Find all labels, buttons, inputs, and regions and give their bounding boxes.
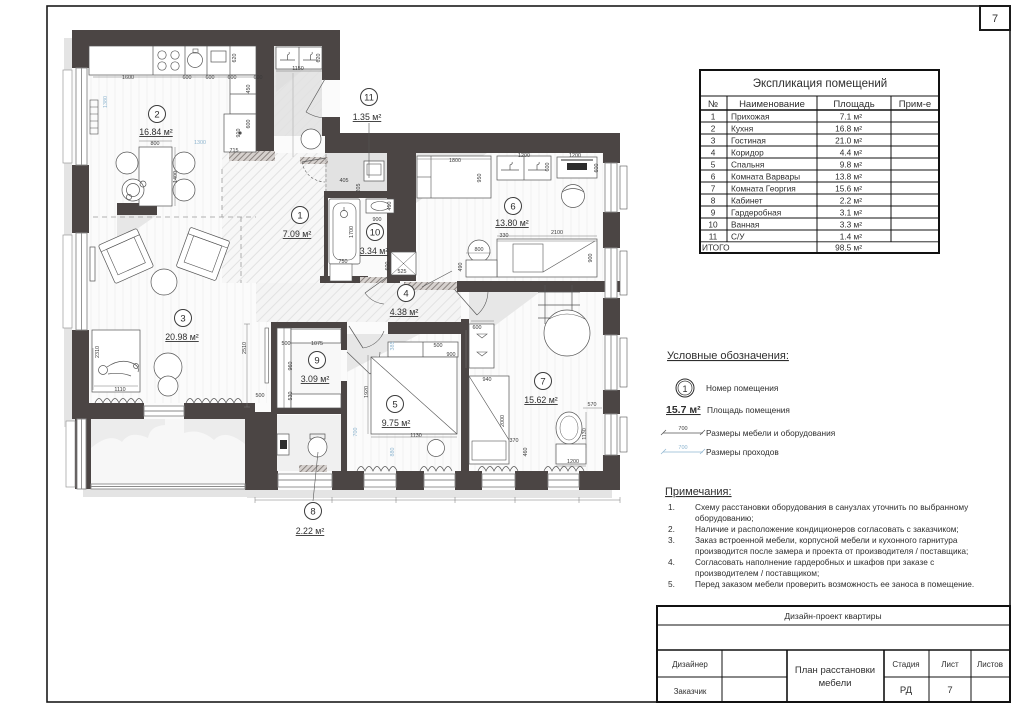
svg-text:600: 600 (206, 75, 215, 81)
svg-text:4.4 м²: 4.4 м² (840, 148, 863, 158)
svg-text:880: 880 (390, 448, 396, 457)
svg-text:9: 9 (711, 208, 716, 218)
svg-text:5.: 5. (668, 579, 675, 589)
svg-text:Гардеробная: Гардеробная (731, 208, 781, 218)
svg-text:600: 600 (246, 120, 252, 129)
svg-text:15.7 м²: 15.7 м² (666, 404, 701, 416)
svg-text:910: 910 (236, 129, 242, 138)
svg-text:20.98 м²: 20.98 м² (165, 332, 199, 342)
svg-text:450: 450 (387, 202, 393, 211)
svg-text:1700: 1700 (349, 226, 355, 238)
svg-text:мебели: мебели (819, 678, 852, 689)
svg-text:5: 5 (392, 400, 397, 411)
svg-text:900: 900 (373, 217, 382, 223)
svg-text:205: 205 (356, 184, 362, 193)
svg-text:2.22 м²: 2.22 м² (296, 526, 325, 536)
svg-text:Наличие и расположение кондици: Наличие и расположение кондиционеров сог… (695, 524, 959, 534)
svg-text:Примечания:: Примечания: (665, 486, 732, 498)
svg-text:460: 460 (523, 448, 529, 457)
svg-text:1920: 1920 (364, 386, 370, 398)
svg-text:1200: 1200 (518, 153, 530, 159)
svg-text:1.35 м²: 1.35 м² (353, 112, 382, 122)
svg-text:10: 10 (370, 228, 381, 239)
svg-text:3.3 м²: 3.3 м² (840, 220, 863, 230)
svg-text:4.38 м²: 4.38 м² (390, 307, 419, 317)
svg-text:450: 450 (246, 85, 252, 94)
svg-text:370: 370 (510, 438, 519, 444)
svg-text:7: 7 (711, 184, 716, 194)
svg-text:Лист: Лист (941, 660, 959, 669)
svg-text:2.2 м²: 2.2 м² (840, 196, 863, 206)
svg-text:Условные обозначения:: Условные обозначения: (667, 350, 789, 362)
svg-text:Прихожая: Прихожая (731, 112, 769, 122)
svg-text:Площадь: Площадь (833, 99, 874, 110)
svg-text:Спальня: Спальня (731, 160, 764, 170)
svg-text:2100: 2100 (551, 230, 563, 236)
svg-text:Листов: Листов (977, 660, 1003, 669)
svg-text:800: 800 (151, 141, 160, 147)
svg-text:530: 530 (288, 392, 294, 401)
svg-text:960: 960 (288, 362, 294, 371)
svg-text:1.: 1. (668, 502, 675, 512)
svg-text:15.6 м²: 15.6 м² (835, 184, 862, 194)
svg-text:Стадия: Стадия (892, 660, 919, 669)
svg-text:715: 715 (230, 148, 239, 154)
svg-text:620: 620 (316, 54, 322, 63)
svg-text:3.: 3. (668, 535, 675, 545)
svg-text:490: 490 (458, 263, 464, 272)
svg-text:9: 9 (314, 356, 319, 367)
svg-text:21.0 м²: 21.0 м² (835, 136, 862, 146)
svg-text:98.5 м²: 98.5 м² (835, 243, 862, 253)
svg-text:9.75 м²: 9.75 м² (382, 418, 411, 428)
svg-text:13.80 м²: 13.80 м² (495, 218, 529, 228)
svg-text:16.84 м²: 16.84 м² (139, 127, 173, 137)
svg-text:3.34 м²: 3.34 м² (360, 246, 389, 256)
svg-text:3.1 м²: 3.1 м² (840, 208, 863, 218)
svg-text:№: № (708, 99, 718, 110)
svg-text:600: 600 (183, 75, 192, 81)
svg-text:Кухня: Кухня (731, 124, 753, 134)
svg-text:11: 11 (364, 93, 374, 104)
svg-text:9.8 м²: 9.8 м² (840, 160, 863, 170)
svg-text:1400: 1400 (173, 171, 179, 183)
svg-text:Перед заказом мебели проверить: Перед заказом мебели проверить возможнос… (695, 579, 974, 589)
svg-text:Согласовать наполнение гардеро: Согласовать наполнение гардеробных и шка… (695, 557, 934, 567)
svg-text:ИТОГО: ИТОГО (702, 243, 730, 253)
svg-text:производителем / поставщиком;: производителем / поставщиком; (695, 568, 819, 578)
svg-text:Размеры проходов: Размеры проходов (706, 447, 779, 457)
svg-text:600: 600 (254, 75, 263, 81)
svg-text:3: 3 (711, 136, 716, 146)
svg-text:Кабинет: Кабинет (731, 196, 763, 206)
svg-text:Наименование: Наименование (739, 99, 805, 110)
svg-text:Схему расстановки оборудования: Схему расстановки оборудования в санузла… (695, 502, 969, 512)
svg-text:Комната Варвары: Комната Варвары (731, 172, 800, 182)
svg-text:700: 700 (353, 428, 359, 437)
svg-text:оборудованию;: оборудованию; (695, 513, 754, 523)
svg-text:4: 4 (403, 289, 408, 300)
svg-text:10: 10 (708, 220, 718, 230)
svg-text:940: 940 (483, 377, 492, 383)
svg-text:600: 600 (228, 75, 237, 81)
svg-text:Ванная: Ванная (731, 220, 759, 230)
svg-text:Номер помещения: Номер помещения (706, 383, 778, 393)
svg-text:Площадь помещения: Площадь помещения (707, 405, 790, 415)
svg-text:Размеры мебели и оборудования: Размеры мебели и оборудования (706, 428, 835, 438)
svg-text:1380: 1380 (103, 96, 109, 108)
svg-text:1200: 1200 (567, 459, 579, 465)
svg-text:6: 6 (711, 172, 716, 182)
svg-text:4.: 4. (668, 557, 675, 567)
svg-text:1: 1 (297, 211, 302, 222)
svg-text:1300: 1300 (194, 140, 206, 146)
svg-text:2: 2 (154, 110, 159, 121)
svg-text:405: 405 (340, 178, 349, 184)
svg-text:2000: 2000 (500, 415, 506, 427)
svg-text:620: 620 (232, 54, 238, 63)
svg-text:Дизайн-проект квартиры: Дизайн-проект квартиры (784, 611, 881, 621)
svg-text:13.8 м²: 13.8 м² (835, 172, 862, 182)
svg-text:1600: 1600 (122, 75, 134, 81)
svg-text:7: 7 (947, 685, 952, 696)
svg-text:Дизайнер: Дизайнер (672, 660, 708, 669)
svg-text:Прим-е: Прим-е (899, 99, 931, 110)
svg-text:750: 750 (339, 259, 348, 265)
svg-text:570: 570 (588, 402, 597, 408)
svg-text:900: 900 (447, 352, 456, 358)
svg-text:15.62 м²: 15.62 м² (524, 395, 558, 405)
svg-text:2310: 2310 (95, 346, 101, 358)
svg-text:7.09 м²: 7.09 м² (283, 229, 312, 239)
svg-text:900: 900 (588, 254, 594, 263)
svg-text:Заказчик: Заказчик (674, 687, 707, 696)
svg-text:С/У: С/У (731, 232, 745, 242)
svg-text:2: 2 (711, 124, 716, 134)
svg-text:11: 11 (709, 232, 718, 242)
svg-text:1.4 м²: 1.4 м² (840, 232, 863, 242)
svg-text:1: 1 (682, 384, 687, 394)
svg-text:8: 8 (711, 196, 716, 206)
svg-text:700: 700 (678, 445, 687, 451)
svg-text:2.: 2. (668, 524, 675, 534)
svg-text:600: 600 (473, 325, 482, 331)
svg-text:600: 600 (545, 163, 551, 172)
svg-text:525: 525 (398, 269, 407, 275)
svg-text:1200: 1200 (569, 153, 581, 159)
svg-text:производится после замера и пр: производится после замера и проекта от п… (695, 546, 968, 556)
svg-text:500: 500 (282, 341, 291, 347)
svg-text:РД: РД (900, 685, 913, 696)
svg-text:4: 4 (711, 148, 716, 158)
svg-text:385: 385 (390, 342, 396, 351)
svg-text:1110: 1110 (114, 387, 125, 393)
svg-text:План расстановки: План расстановки (795, 665, 875, 676)
svg-text:1130: 1130 (582, 428, 588, 440)
svg-text:500: 500 (256, 393, 265, 399)
svg-text:Экспликация помещений: Экспликация помещений (753, 78, 888, 90)
svg-text:1130: 1130 (410, 433, 422, 439)
svg-text:700: 700 (678, 426, 687, 432)
svg-text:7: 7 (992, 13, 998, 25)
svg-text:800: 800 (475, 247, 484, 253)
svg-text:3.09 м²: 3.09 м² (301, 374, 330, 384)
svg-text:1: 1 (711, 112, 716, 122)
svg-text:600: 600 (594, 164, 600, 173)
svg-text:Коридор: Коридор (731, 148, 764, 158)
svg-text:5: 5 (711, 160, 716, 170)
svg-text:500: 500 (434, 343, 443, 349)
svg-text:1075: 1075 (311, 341, 323, 347)
svg-text:Гостиная: Гостиная (731, 136, 766, 146)
svg-text:600: 600 (385, 262, 391, 271)
svg-text:8: 8 (310, 507, 315, 518)
svg-text:Комната Георгия: Комната Георгия (731, 184, 796, 194)
svg-text:Заказ встроенной мебели, корпу: Заказ встроенной мебели, корпусной мебел… (695, 535, 958, 545)
svg-text:3: 3 (180, 314, 185, 325)
svg-text:950: 950 (477, 174, 483, 183)
svg-text:7.1 м²: 7.1 м² (840, 112, 863, 122)
svg-text:7: 7 (540, 377, 545, 388)
svg-text:6: 6 (510, 202, 515, 213)
svg-text:16.8 м²: 16.8 м² (835, 124, 862, 134)
